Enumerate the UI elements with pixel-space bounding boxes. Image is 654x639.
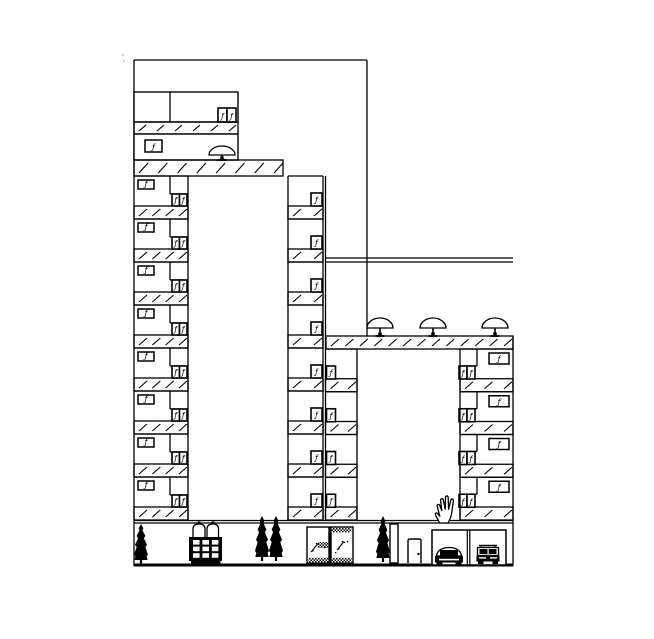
cad-viewport[interactable]: ƒƒƒƒƒƒƒƒƒƒƒƒƒƒƒƒƒƒƒƒƒƒƒƒƒƒƒƒƒƒƒƒƒƒƒƒƒƒƒƒ… — [0, 0, 654, 639]
right-roof-umbrella-1 — [367, 318, 393, 336]
open-hand-cursor — [435, 496, 453, 523]
parked-car-suv — [477, 546, 500, 565]
penthouse-figure-window: ƒ — [145, 140, 162, 152]
left-tower-left-wing: ƒƒƒƒƒƒƒƒƒƒƒƒƒƒƒƒƒƒƒƒƒƒƒƒ — [134, 176, 188, 520]
cypress-tree-1 — [134, 524, 148, 564]
penthouse-window-pair: ƒƒ — [218, 108, 236, 122]
left-tower-roof-slab — [134, 160, 283, 176]
left-tower-right-wing: ƒƒƒƒƒƒƒƒ — [288, 176, 323, 520]
right-building-left-wing: ƒƒƒƒ — [326, 349, 358, 520]
entrance-glass-door — [307, 527, 353, 563]
right-building-roof-slab — [326, 336, 513, 349]
right-building-right-wing: ƒƒƒƒƒƒƒƒƒƒƒƒ — [459, 349, 513, 520]
parked-car-sedan — [435, 548, 463, 565]
penthouse-slab — [134, 122, 238, 134]
entrance-gate — [189, 522, 222, 567]
facade-pillar — [390, 524, 398, 563]
right-roof-umbrella-2 — [420, 318, 446, 336]
right-roof-umbrella-3 — [482, 318, 508, 336]
stray-plot-mark — [122, 54, 125, 62]
service-door — [408, 539, 421, 563]
elevation-drawing: ƒƒƒƒƒƒƒƒƒƒƒƒƒƒƒƒƒƒƒƒƒƒƒƒƒƒƒƒƒƒƒƒƒƒƒƒƒƒƒƒ… — [0, 0, 654, 639]
